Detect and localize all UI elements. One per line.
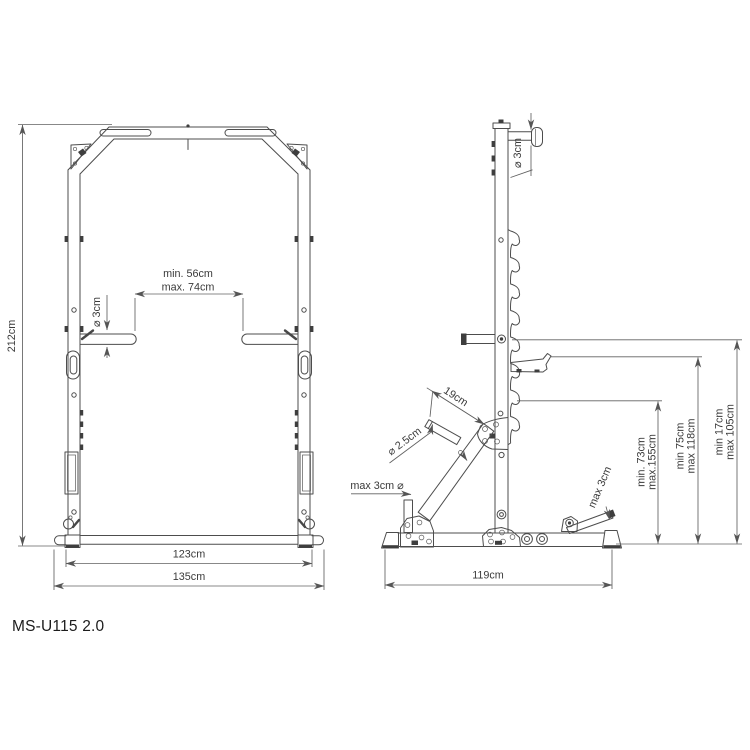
front-inner-width-label: 123cm <box>173 549 205 561</box>
left-support-arm <box>80 331 136 345</box>
base-depth-label: 119cm <box>472 570 504 582</box>
front-view: 212cm min. 56cm max. 74cm ⌀ 3cm 123cm 13… <box>6 124 324 590</box>
front-total-height-label: 212cm <box>6 320 18 352</box>
left-logo-plate <box>65 452 78 494</box>
jhook-height-max-label: max.155cm <box>647 434 659 490</box>
right-corner-gusset <box>287 144 307 169</box>
right-support-arm <box>242 331 298 345</box>
side-grip-diameter-label: ⌀ 3cm <box>512 138 524 168</box>
left-upright <box>65 170 84 535</box>
side-j-hook <box>511 354 551 373</box>
model-title: MS-U115 2.0 <box>12 618 104 636</box>
center-mark-dot <box>186 124 189 127</box>
side-peg-length-label: 19cm <box>441 385 470 409</box>
front-outer-width-label: 135cm <box>173 571 205 583</box>
front-arm-diameter-label: ⌀ 3cm <box>91 297 103 327</box>
technical-drawing-svg: 212cm min. 56cm max. 74cm ⌀ 3cm 123cm 13… <box>0 0 750 750</box>
front-arm-span-max-label: max. 74cm <box>162 282 215 294</box>
right-upright <box>295 170 314 535</box>
front-dimensions: 212cm min. 56cm max. 74cm ⌀ 3cm 123cm 13… <box>6 125 324 591</box>
front-base <box>55 516 324 548</box>
front-arm-span-min-label: min. 56cm <box>163 268 213 280</box>
mid-height-max-label: max 118cm <box>686 418 698 473</box>
side-view: ⌀ 3cm 19cm ⌀ 2.5cm max 3cm ⌀ max 3cm <box>350 113 742 589</box>
left-stabilizer-cap <box>55 536 66 545</box>
side-spotter-peg <box>461 334 506 346</box>
front-bar-diameter-label: max 3cm ⌀ <box>350 480 404 492</box>
pullup-bar-arch <box>68 124 310 174</box>
right-logo-plate <box>300 452 313 494</box>
rear-bar-diameter-label: max 3cm <box>586 465 614 510</box>
diagonal-brace <box>418 424 494 521</box>
technical-drawing-page: 212cm min. 56cm max. 74cm ⌀ 3cm 123cm 13… <box>0 0 750 750</box>
right-stabilizer-cap <box>312 536 324 545</box>
side-upright <box>492 120 510 534</box>
hook-teeth-column <box>508 230 520 445</box>
low-height-max-label: max 105cm <box>725 404 737 460</box>
